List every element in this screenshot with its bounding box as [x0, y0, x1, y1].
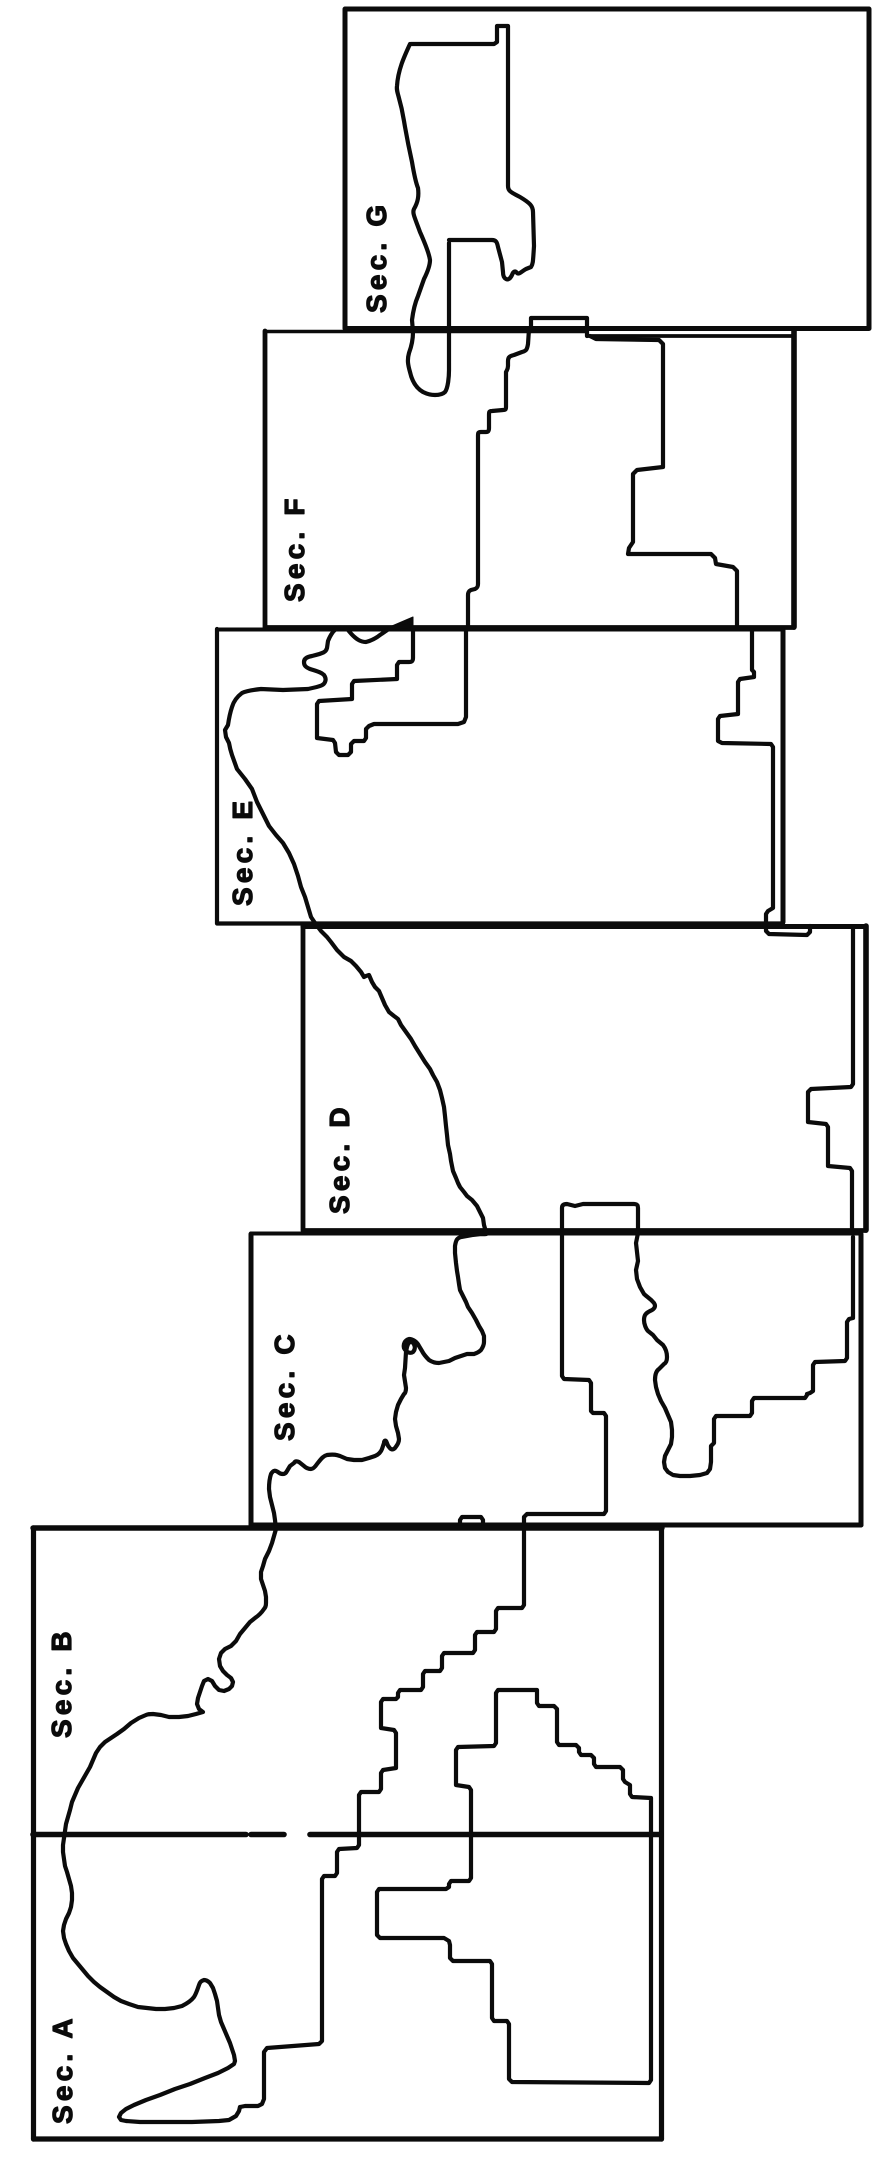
- svg-text:Sec. G: Sec. G: [361, 201, 392, 313]
- svg-text:Sec. C: Sec. C: [269, 1330, 300, 1441]
- svg-text:Sec. B: Sec. B: [46, 1627, 77, 1738]
- svg-text:Sec. E: Sec. E: [227, 797, 258, 906]
- svg-text:Sec. F: Sec. F: [279, 494, 310, 602]
- svg-text:Sec. A: Sec. A: [47, 2014, 78, 2124]
- svg-text:Sec. D: Sec. D: [324, 1103, 355, 1214]
